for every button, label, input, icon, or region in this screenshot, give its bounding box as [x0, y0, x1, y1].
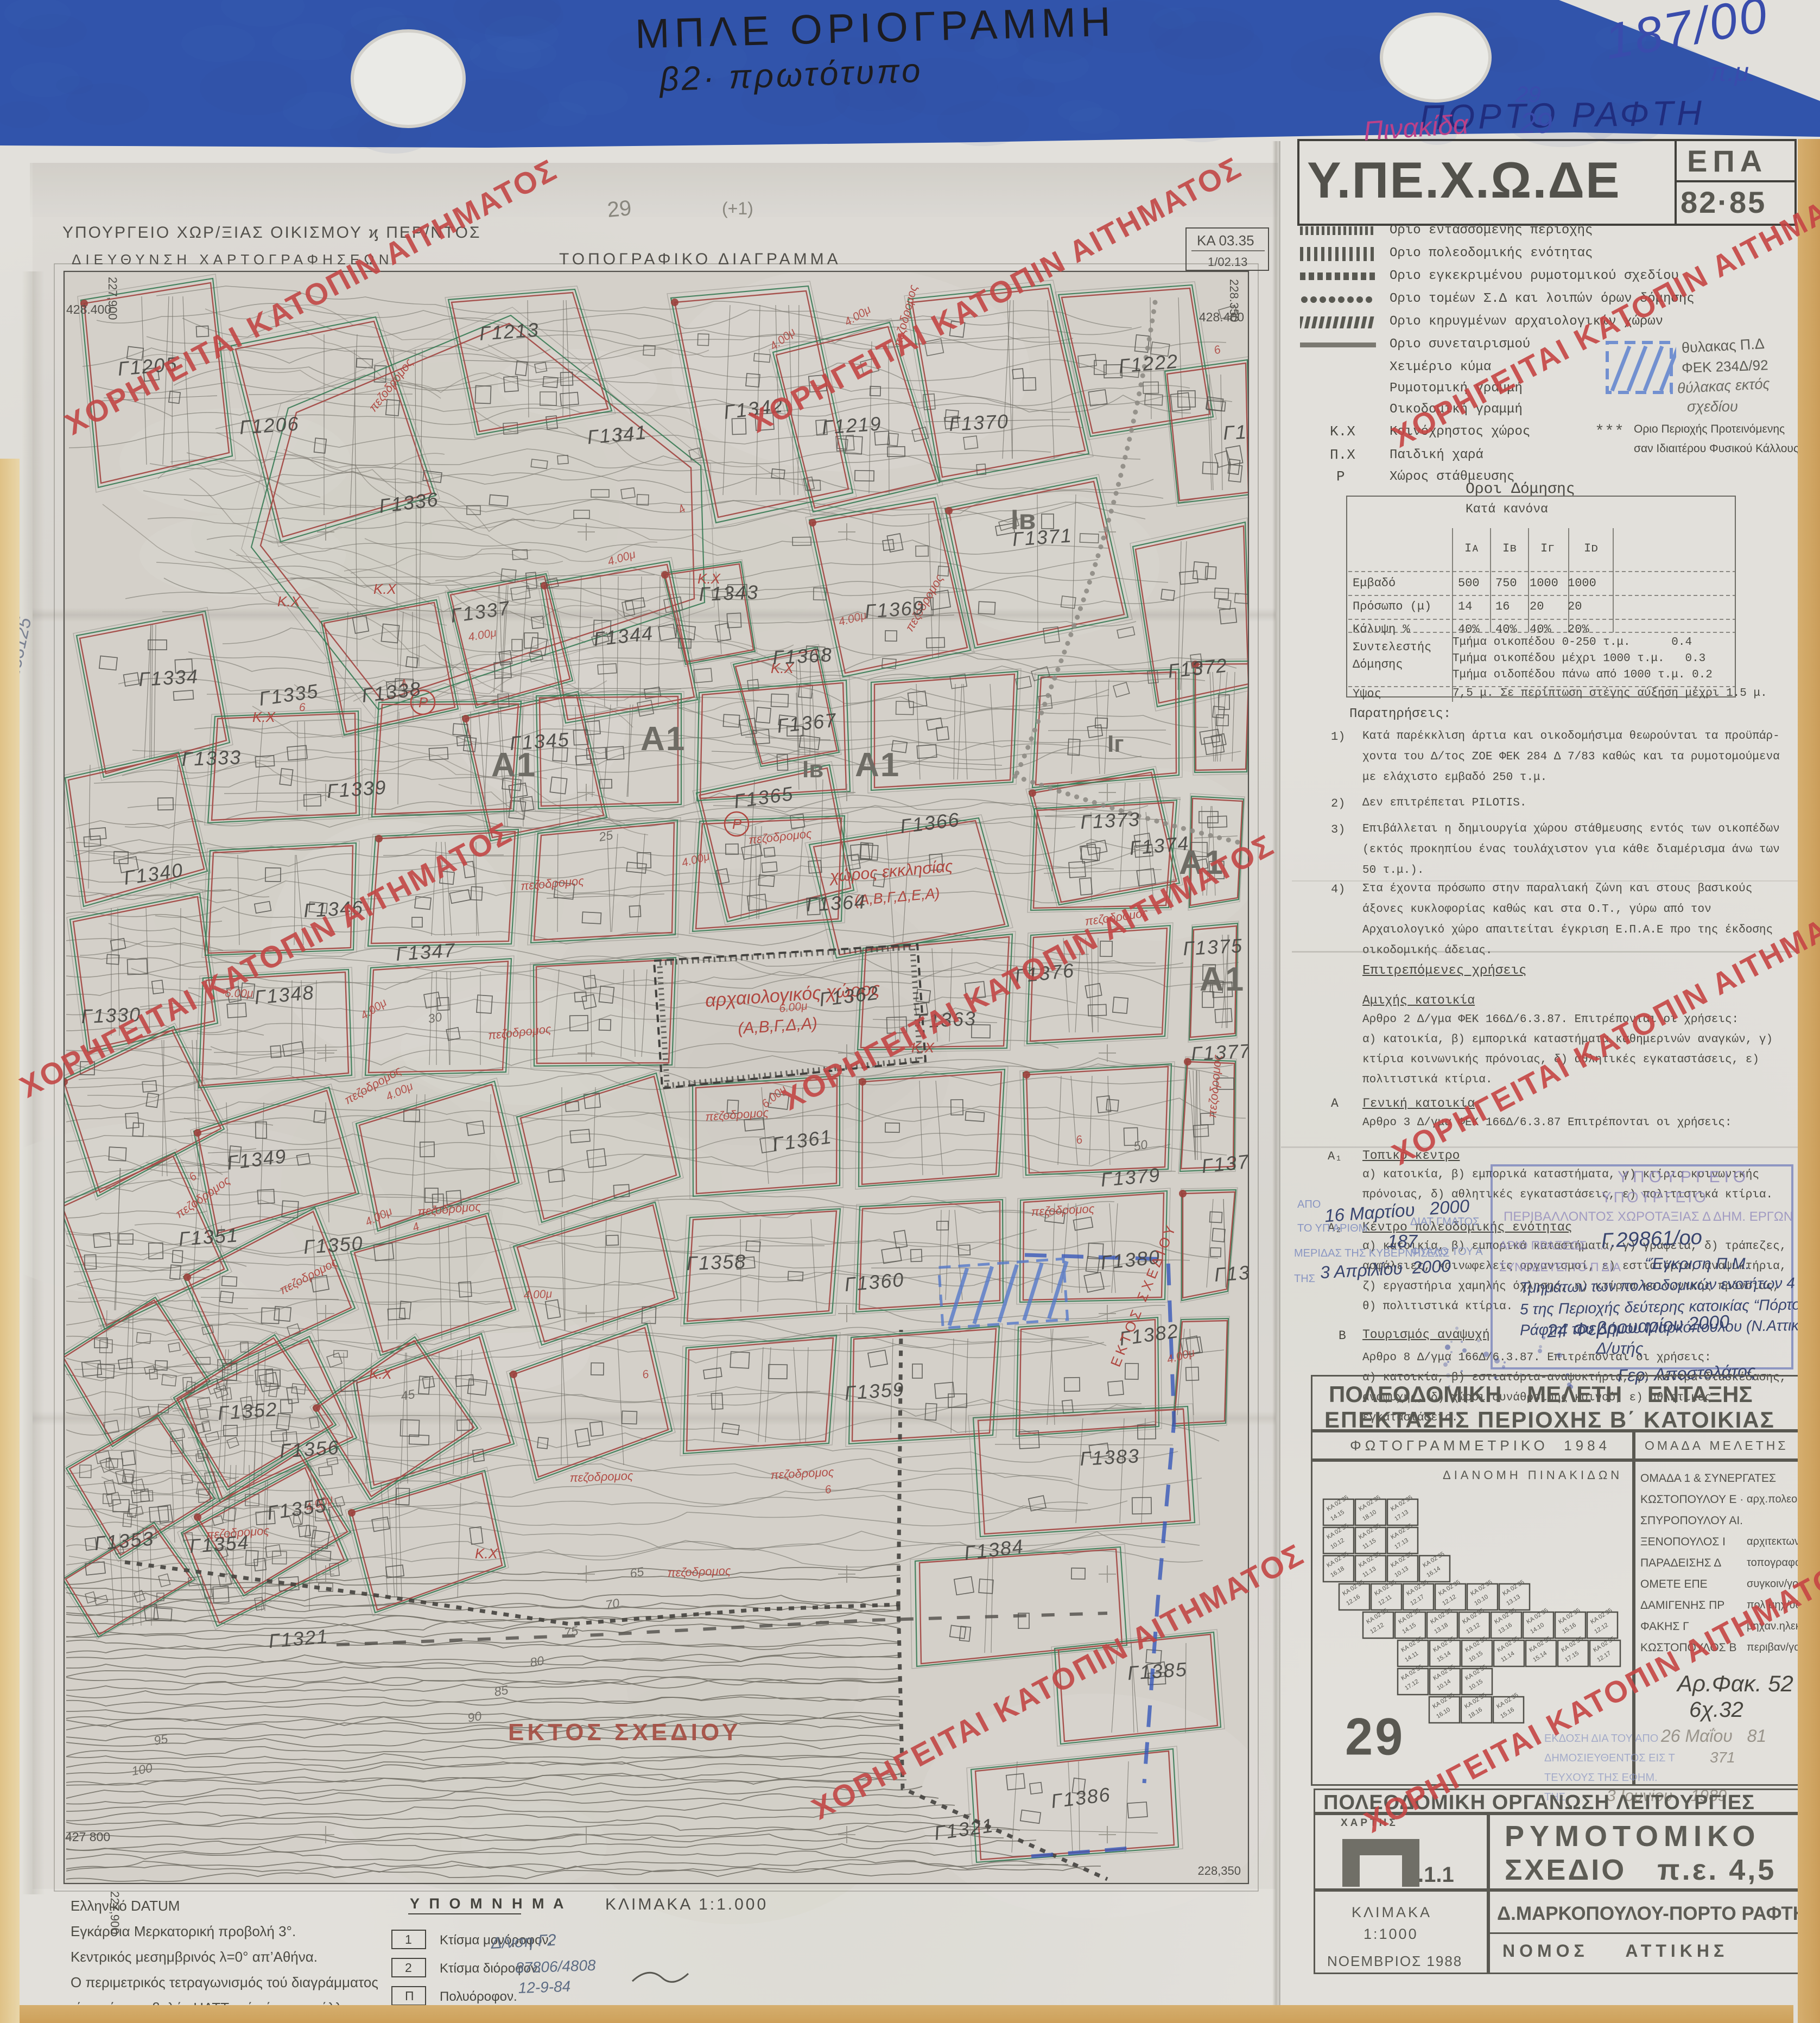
svg-text:ΚΑ 02 35: ΚΑ 02 35: [1358, 1494, 1381, 1513]
svg-text:29: 29: [606, 196, 632, 222]
svg-text:ΚΑ 03.35: ΚΑ 03.35: [1197, 232, 1254, 249]
svg-text:Γ1358: Γ1358: [686, 1250, 747, 1274]
svg-text:ΚΑ 02 35: ΚΑ 02 35: [1390, 1494, 1413, 1513]
svg-text:ΤΟΠΟΓΡΑΦΙΚΟ ΔΙΑΓΡΑΜΜΑ: ΤΟΠΟΓΡΑΦΙΚΟ ΔΙΑΓΡΑΜΜΑ: [559, 250, 841, 268]
svg-text:Πολυόροφον.: Πολυόροφον.: [440, 1989, 517, 2004]
svg-text:10.15: 10.15: [1468, 1678, 1484, 1692]
svg-text:Γ1383: Γ1383: [1079, 1444, 1140, 1470]
svg-text:12.12: 12.12: [1441, 1594, 1457, 1607]
svg-text:ΚΑ 02 35: ΚΑ 02 35: [1495, 1692, 1519, 1710]
svg-text:25: 25: [597, 828, 614, 844]
svg-text:10.15: 10.15: [1468, 1650, 1484, 1664]
svg-text:Α1: Α1: [491, 746, 536, 784]
svg-text:10.10: 10.10: [1473, 1594, 1489, 1607]
svg-text:Γ1364: Γ1364: [806, 890, 867, 916]
svg-text:16.10: 16.10: [1435, 1707, 1451, 1720]
svg-text:Γ1334: Γ1334: [138, 665, 199, 690]
svg-text:16.18: 16.18: [1329, 1565, 1346, 1579]
svg-text:(+1): (+1): [722, 199, 753, 218]
svg-text:Γ1381: Γ1381: [1214, 1259, 1275, 1286]
svg-text:12.17: 12.17: [1596, 1650, 1612, 1664]
svg-text:Γ1356: Γ1356: [279, 1436, 340, 1462]
svg-text:13.12: 13.12: [1465, 1622, 1481, 1635]
svg-text:12-9-84: 12-9-84: [518, 1978, 571, 1996]
svg-text:17.15: 17.15: [1564, 1650, 1580, 1664]
svg-text:80: 80: [529, 1653, 545, 1670]
svg-text:17.12: 17.12: [1404, 1678, 1420, 1692]
svg-text:12.11: 12.11: [1377, 1594, 1393, 1607]
svg-text:Ιг: Ιг: [1107, 731, 1124, 757]
svg-text:15.14: 15.14: [1532, 1650, 1548, 1664]
svg-text:πεζοδρομος: πεζοδρομος: [569, 1469, 633, 1485]
svg-text:Εγκάρσια Μερκατορική προβολή 3: Εγκάρσια Μερκατορική προβολή 3°.: [71, 1923, 296, 1939]
svg-text:18.10: 18.10: [1361, 1509, 1378, 1523]
svg-text:13.13: 13.13: [1505, 1594, 1521, 1607]
svg-text:65: 65: [629, 1564, 645, 1581]
svg-text:428.400: 428.400: [66, 302, 111, 316]
svg-text:10.14: 10.14: [1436, 1678, 1452, 1692]
svg-text:10.13: 10.13: [1393, 1565, 1410, 1579]
svg-text:70: 70: [604, 1596, 620, 1612]
svg-text:95: 95: [153, 1732, 169, 1748]
svg-text:Ιв: Ιв: [1011, 504, 1036, 536]
svg-text:Κ.Χ: Κ.Χ: [369, 1366, 393, 1382]
svg-text:Γ1370: Γ1370: [948, 410, 1010, 435]
svg-text:228,350: 228,350: [1197, 1864, 1241, 1878]
svg-text:Γ1347: Γ1347: [395, 938, 456, 965]
svg-text:Γ1368: Γ1368: [772, 643, 833, 669]
svg-text:12.12: 12.12: [1369, 1622, 1385, 1635]
svg-text:15.14: 15.14: [1436, 1650, 1452, 1664]
svg-text:Γ1206: Γ1206: [239, 412, 300, 439]
svg-text:18.16: 18.16: [1467, 1707, 1483, 1720]
svg-text:Ιв: Ιв: [802, 756, 823, 783]
svg-text:2: 2: [405, 1961, 412, 1975]
svg-text:Ελληνικό DATUM: Ελληνικό DATUM: [71, 1898, 180, 1914]
svg-text:13.18: 13.18: [1433, 1622, 1449, 1635]
svg-text:Γ1213: Γ1213: [479, 318, 540, 345]
svg-text:Κ.Χ: Κ.Χ: [475, 1545, 499, 1562]
svg-text:75: 75: [563, 1624, 579, 1640]
svg-text:15.16: 15.16: [1561, 1622, 1577, 1635]
svg-text:Γ1354: Γ1354: [189, 1531, 250, 1557]
svg-text:227,900: 227,900: [106, 277, 119, 320]
svg-text:Κεντρικός μεσημβρινός λ=0° α: Κεντρικός μεσημβρινός λ=0° απ’Αθήνα.: [71, 1949, 318, 1965]
svg-text:Γ1359: Γ1359: [844, 1378, 905, 1404]
svg-text:ΕΚΤΟΣ ΣΧΕΔΙΟΥ: ΕΚΤΟΣ ΣΧΕΔΙΟΥ: [508, 1719, 741, 1746]
svg-text:30: 30: [427, 1010, 443, 1026]
svg-text:Γ1375: Γ1375: [1182, 934, 1244, 960]
svg-text:Α1: Α1: [855, 746, 900, 784]
svg-text:12.17: 12.17: [1409, 1594, 1425, 1607]
svg-text:10.12: 10.12: [1329, 1537, 1346, 1551]
svg-text:Γ1351: Γ1351: [178, 1223, 239, 1250]
svg-text:πεζοδρομος: πεζοδρομος: [667, 1564, 731, 1580]
svg-text:17.13: 17.13: [1393, 1509, 1410, 1523]
svg-text:ΚΑ 02 35: ΚΑ 02 35: [1501, 1579, 1525, 1597]
svg-text:14.10: 14.10: [1529, 1622, 1545, 1635]
svg-text:Κ.Χ: Κ.Χ: [252, 709, 276, 725]
svg-text:11.13: 11.13: [1361, 1565, 1377, 1578]
svg-text:12.16: 12.16: [1345, 1594, 1361, 1607]
svg-text:Γ1219: Γ1219: [821, 412, 883, 439]
svg-text:Γ1339: Γ1339: [326, 776, 388, 802]
svg-text:ΚΑ 02 35: ΚΑ 02 35: [1326, 1494, 1349, 1513]
svg-text:Α1: Α1: [1200, 961, 1245, 998]
svg-text:Γ1333: Γ1333: [181, 746, 242, 770]
svg-text:Κ.Χ: Κ.Χ: [277, 593, 301, 610]
svg-text:Γ1373: Γ1373: [1080, 808, 1141, 833]
svg-text:90: 90: [466, 1709, 483, 1725]
svg-text:P: P: [732, 816, 742, 832]
svg-text:16.14: 16.14: [1425, 1565, 1442, 1579]
svg-text:Υ Π Ο Μ Ν Η Μ Α: Υ Π Ο Μ Ν Η Μ Α: [410, 1895, 567, 1912]
svg-text:87806/4808: 87806/4808: [515, 1957, 596, 1976]
svg-text:Γ1350: Γ1350: [303, 1232, 364, 1258]
svg-text:15.16: 15.16: [1499, 1707, 1515, 1720]
svg-text:ΚΑ 02 35: ΚΑ 02 35: [1557, 1607, 1581, 1626]
svg-text:11.15: 11.15: [1361, 1537, 1377, 1550]
svg-text:11.14: 11.14: [1500, 1650, 1515, 1663]
svg-text:ΚΛΙΜΑΚΑ 1:1.000: ΚΛΙΜΑΚΑ 1:1.000: [605, 1895, 768, 1913]
svg-text:Α1: Α1: [641, 720, 686, 758]
svg-text:17.13: 17.13: [1393, 1537, 1410, 1551]
svg-text:14.15: 14.15: [1329, 1509, 1346, 1523]
svg-text:13.16: 13.16: [1497, 1622, 1513, 1635]
svg-text:1: 1: [405, 1932, 412, 1946]
svg-text:228.350: 228.350: [1227, 279, 1241, 322]
svg-text:Γ1377: Γ1377: [1190, 1039, 1252, 1065]
svg-text:Κ.Χ: Κ.Χ: [373, 581, 397, 597]
svg-text:Δ/νση Γ2: Δ/νση Γ2: [490, 1931, 557, 1952]
svg-text:45: 45: [399, 1387, 416, 1403]
svg-text:Γ1343: Γ1343: [699, 581, 759, 605]
svg-text:Π: Π: [405, 1989, 414, 2003]
svg-text:4.00μ: 4.00μ: [523, 1288, 553, 1302]
svg-text:14.15: 14.15: [1401, 1622, 1417, 1635]
svg-text:50: 50: [1132, 1137, 1149, 1153]
svg-text:427 800: 427 800: [65, 1830, 110, 1844]
svg-text:Γ1385: Γ1385: [1127, 1658, 1188, 1684]
svg-text:12.12: 12.12: [1593, 1622, 1609, 1635]
svg-text:ΚΑ 02 35: ΚΑ 02 35: [1469, 1579, 1493, 1597]
svg-text:85: 85: [493, 1683, 509, 1699]
svg-text:14.11: 14.11: [1404, 1650, 1419, 1663]
svg-text:ΚΑ 02 35: ΚΑ 02 35: [1589, 1607, 1613, 1626]
svg-text:1/02.13: 1/02.13: [1208, 255, 1247, 269]
svg-text:ΚΑ 02 35: ΚΑ 02 35: [1422, 1551, 1445, 1569]
svg-text:Ο περιμετρικός τετραγωνισμός τ: Ο περιμετρικός τετραγωνισμός τού διαγράμ…: [71, 1974, 378, 1990]
